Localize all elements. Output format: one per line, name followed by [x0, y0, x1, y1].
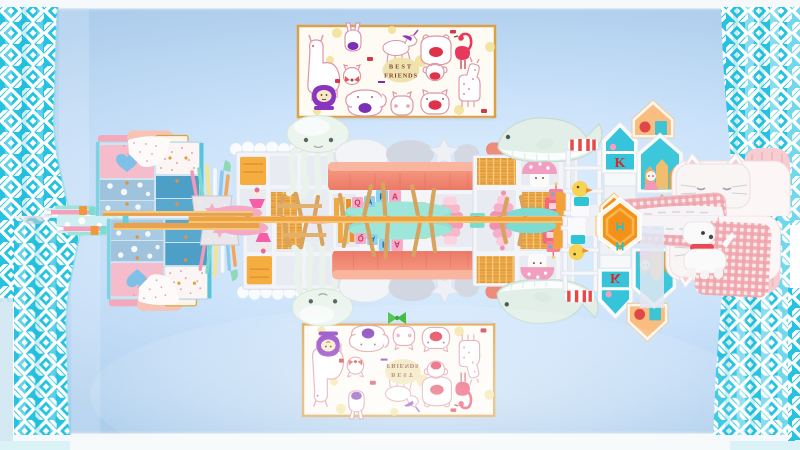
svg-text:H: H	[616, 220, 625, 234]
svg-text:H: H	[616, 239, 625, 253]
